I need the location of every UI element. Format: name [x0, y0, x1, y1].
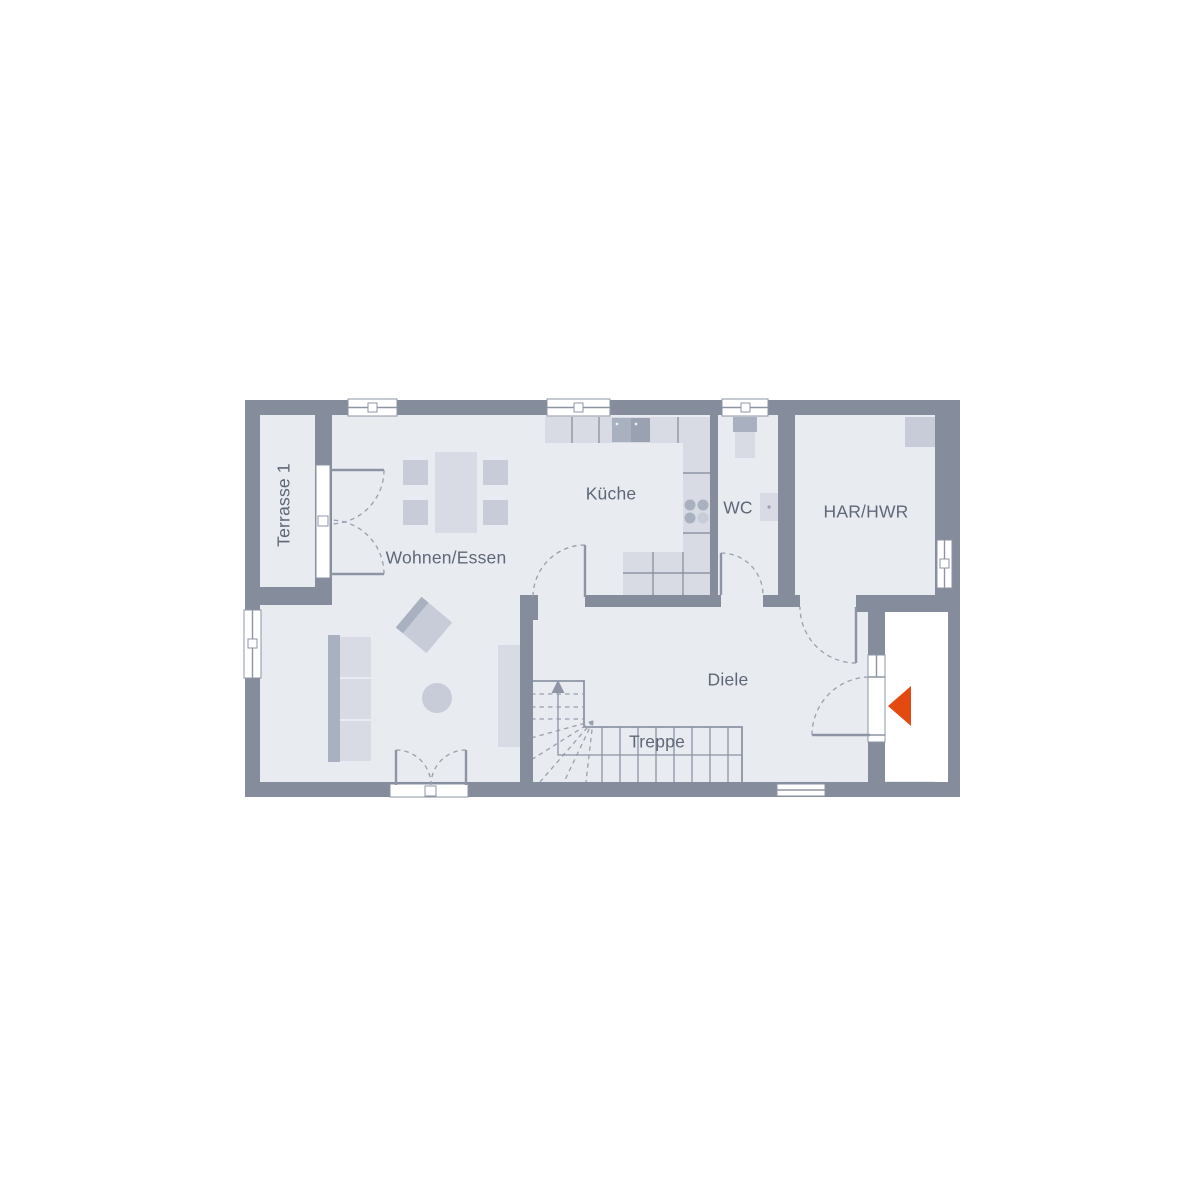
- dining-chair: [483, 460, 508, 485]
- dining-chair: [483, 500, 508, 525]
- wall-kitchen-wc: [710, 415, 718, 607]
- room-label-kueche: Küche: [586, 484, 637, 505]
- wall-right-lower: [948, 595, 960, 797]
- dining-chair: [403, 500, 428, 525]
- burner: [698, 500, 709, 511]
- sofa-backrest: [328, 635, 340, 762]
- wall-wc-south-left: [712, 595, 721, 607]
- floor-plan: Terrasse 1 Wohnen/Essen Küche WC HAR/HWR…: [0, 0, 1200, 1200]
- door-handle: [318, 516, 328, 526]
- window-top-kitchen: [547, 399, 610, 416]
- window-handle: [248, 639, 257, 648]
- room-label-wohnen-essen: Wohnen/Essen: [386, 548, 507, 569]
- wall-living-stair-divider: [520, 595, 533, 782]
- entrance-porch: [885, 612, 948, 781]
- utility-fixture: [905, 417, 937, 447]
- room-label-wc: WC: [723, 498, 753, 519]
- toilet-bowl: [735, 432, 755, 458]
- basin-drain: [767, 505, 770, 508]
- coffee-table: [422, 683, 452, 713]
- door-handle: [425, 786, 436, 796]
- window-handle: [368, 403, 377, 412]
- window-top-wc: [722, 399, 768, 416]
- sofa-cushion: [340, 679, 371, 719]
- room-label-har-hwr: HAR/HWR: [823, 502, 908, 523]
- window-handle: [741, 403, 750, 412]
- wall-bottom: [245, 782, 960, 797]
- sofa-cushion: [340, 637, 371, 677]
- dining-chair: [403, 460, 428, 485]
- dining-table: [435, 452, 477, 533]
- burner: [698, 513, 709, 524]
- window-handle: [940, 559, 949, 568]
- window-top-living: [348, 399, 397, 416]
- window-bottom-diele: [777, 784, 825, 796]
- appliance-handle-dot: [616, 423, 619, 426]
- wall-kitchen-south: [585, 595, 712, 607]
- appliance-dishwasher: [631, 418, 650, 442]
- toilet-tank: [733, 417, 757, 432]
- burner: [685, 513, 696, 524]
- room-label-treppe: Treppe: [629, 732, 685, 753]
- window-left-living: [244, 610, 261, 678]
- burner: [685, 500, 696, 511]
- wall-wc-har: [778, 415, 795, 607]
- wall-terrace-bottom: [245, 587, 332, 605]
- floor-plan-drawing: [0, 0, 1200, 1200]
- appliance-oven: [612, 418, 631, 442]
- room-label-diele: Diele: [708, 670, 749, 691]
- sofa-cushion: [340, 721, 371, 761]
- room-label-terrasse: Terrasse 1: [274, 463, 295, 547]
- sideboard: [498, 645, 520, 747]
- window-handle: [574, 403, 583, 412]
- window-right-har: [937, 540, 952, 588]
- appliance-handle-dot: [635, 423, 638, 426]
